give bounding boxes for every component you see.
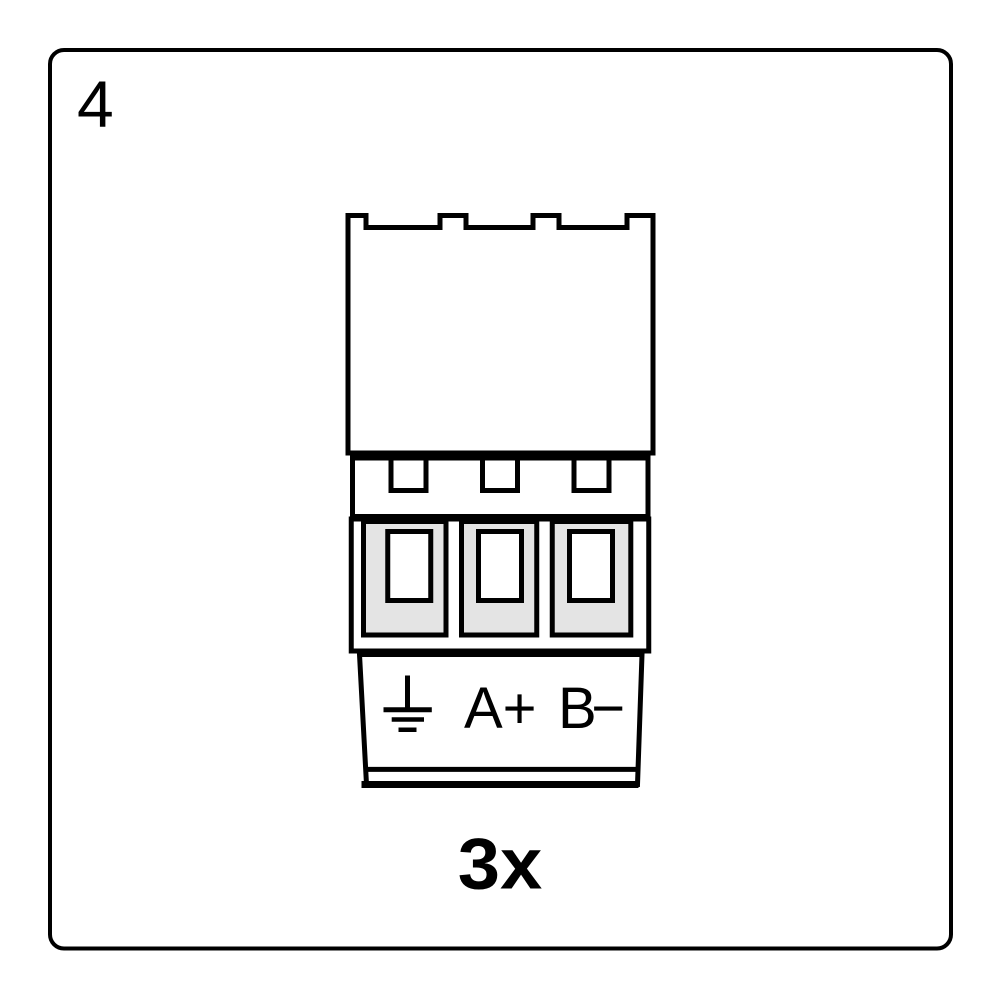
svg-text:A+: A+ bbox=[464, 676, 537, 741]
svg-text:−: − bbox=[591, 676, 625, 741]
svg-text:3x: 3x bbox=[458, 823, 543, 904]
svg-text:4: 4 bbox=[77, 67, 114, 141]
